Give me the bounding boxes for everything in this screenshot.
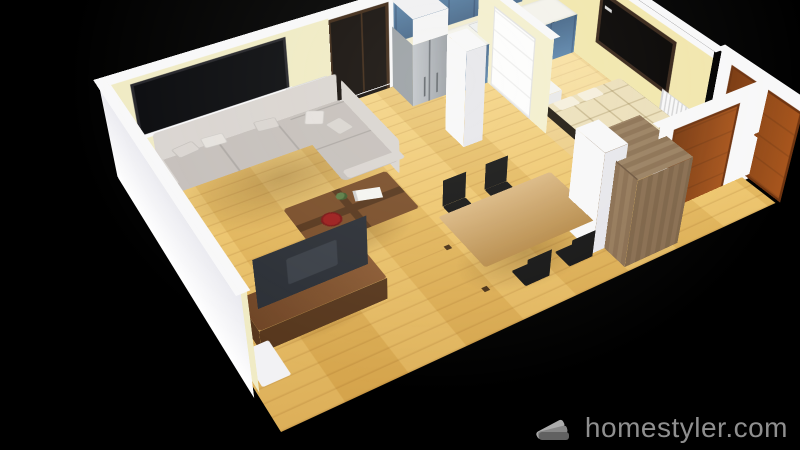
tv-label-sticker xyxy=(605,5,612,13)
fridge-handles xyxy=(424,72,438,96)
homestyler-watermark: homestyler.com xyxy=(539,412,788,444)
throw-pillow xyxy=(304,111,324,125)
tv-back-panel xyxy=(286,239,338,284)
render-canvas: homestyler.com xyxy=(0,0,800,450)
homestyler-text: homestyler.com xyxy=(585,412,788,444)
homestyler-fan-icon xyxy=(539,415,573,441)
apartment-plan xyxy=(108,25,789,447)
render-viewport xyxy=(0,0,800,450)
logo-layer xyxy=(539,432,569,440)
refrigerator xyxy=(413,34,448,107)
